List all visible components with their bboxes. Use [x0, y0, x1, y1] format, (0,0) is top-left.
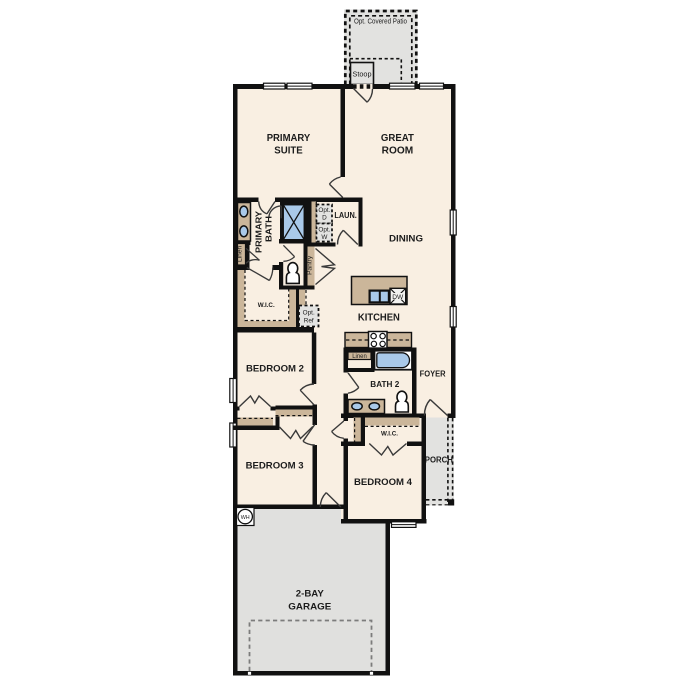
svg-text:WH: WH — [241, 515, 250, 521]
svg-text:W.I.C.: W.I.C. — [381, 431, 398, 438]
svg-text:KITCHEN: KITCHEN — [358, 313, 400, 324]
svg-text:PRIMARY: PRIMARY — [254, 211, 264, 253]
svg-text:Opt.: Opt. — [318, 227, 330, 234]
svg-text:Linen: Linen — [352, 353, 367, 360]
svg-text:PRIMARY: PRIMARY — [267, 133, 311, 144]
svg-text:Opt.: Opt. — [303, 310, 315, 317]
svg-text:SUITE: SUITE — [274, 146, 303, 157]
svg-text:FOYER: FOYER — [420, 368, 447, 378]
svg-text:Opt.: Opt. — [318, 207, 330, 214]
svg-text:GARAGE: GARAGE — [288, 600, 331, 611]
svg-text:Opt. Covered Patio: Opt. Covered Patio — [354, 17, 407, 26]
svg-text:Pantry: Pantry — [307, 255, 314, 275]
svg-text:BEDROOM 2: BEDROOM 2 — [246, 363, 304, 373]
svg-text:BEDROOM 3: BEDROOM 3 — [246, 461, 304, 471]
svg-text:PORCH: PORCH — [425, 455, 453, 465]
svg-text:DINING: DINING — [389, 234, 423, 245]
svg-text:BEDROOM 4: BEDROOM 4 — [354, 477, 412, 487]
svg-text:2-BAY: 2-BAY — [296, 587, 325, 598]
svg-text:DW: DW — [392, 294, 404, 301]
svg-text:Stoop: Stoop — [353, 70, 372, 79]
svg-text:BATH: BATH — [264, 216, 274, 242]
svg-text:Linen: Linen — [237, 246, 244, 262]
svg-text:BATH 2: BATH 2 — [370, 380, 400, 389]
svg-text:W.I.C.: W.I.C. — [258, 302, 275, 309]
svg-text:D: D — [322, 215, 327, 222]
svg-text:W: W — [321, 234, 328, 241]
svg-text:LAUN.: LAUN. — [334, 211, 357, 220]
svg-text:Ref: Ref — [304, 318, 314, 325]
svg-text:GREAT: GREAT — [381, 133, 414, 144]
svg-text:ROOM: ROOM — [382, 146, 414, 157]
